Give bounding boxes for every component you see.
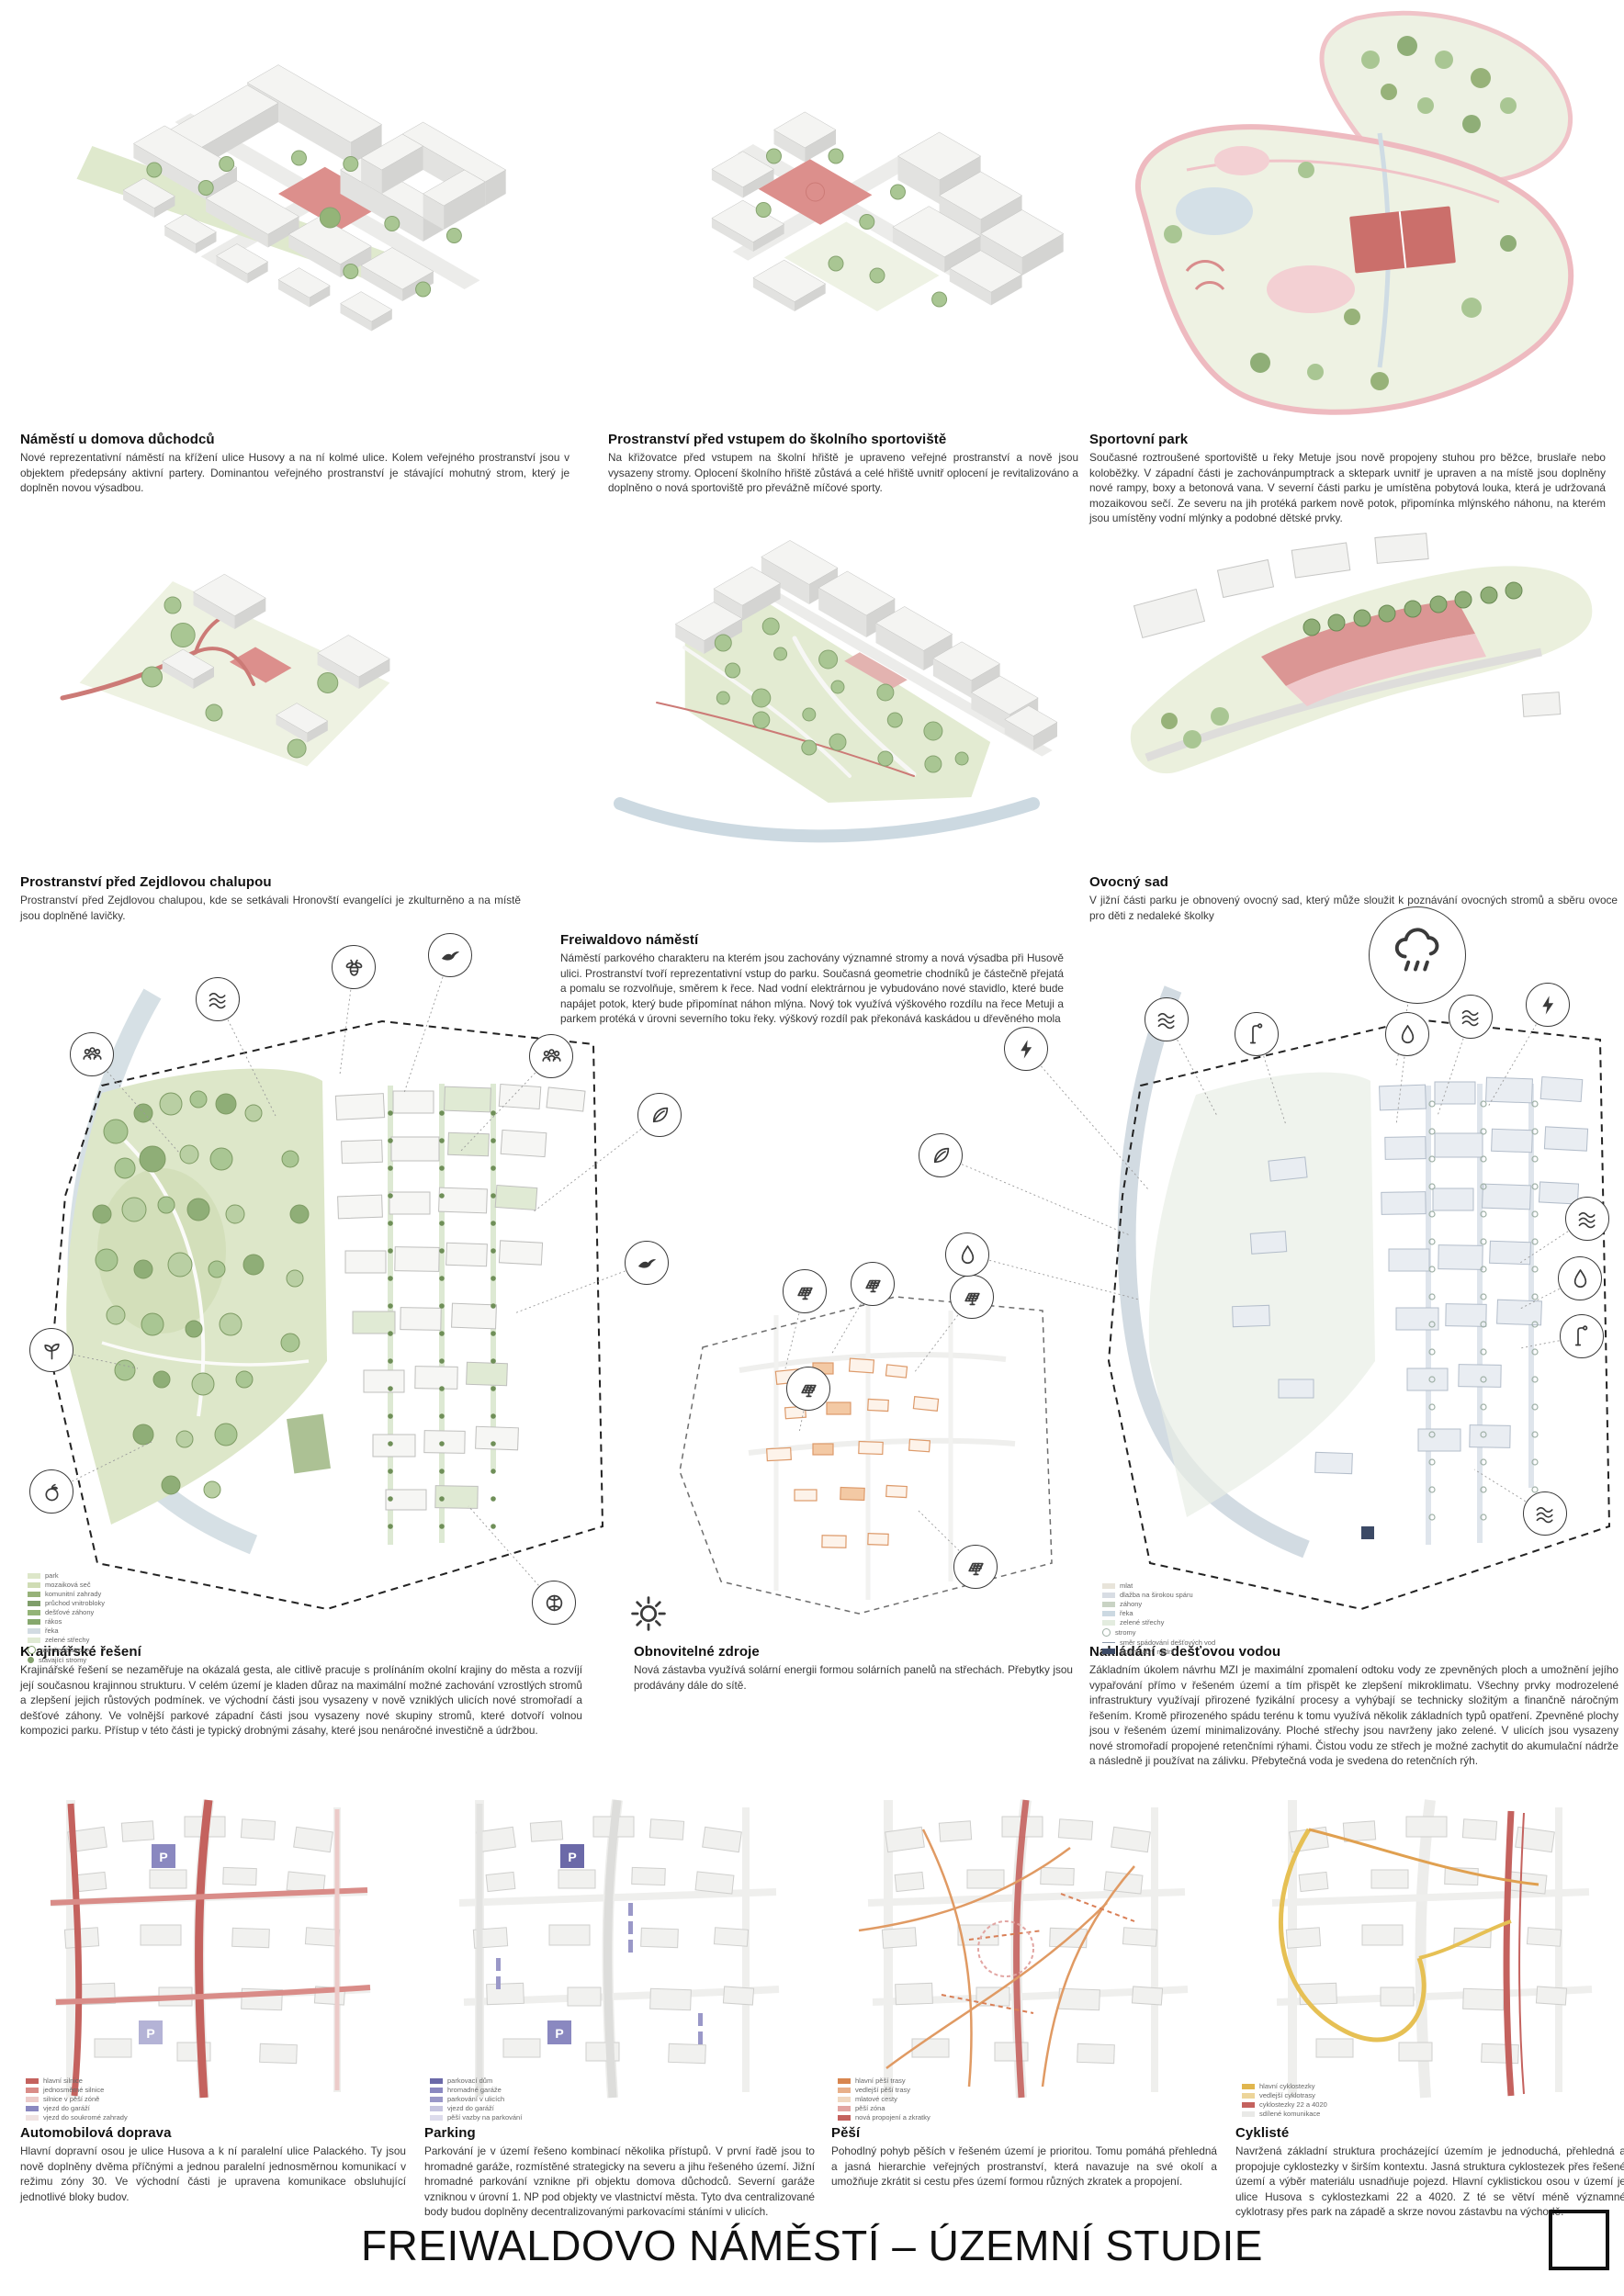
caption-automobilova-doprava: Automobilová doprava Hlavní dopravní oso… [20,2125,406,2204]
caption-body: Současné roztroušené sportoviště u řeky … [1089,450,1606,526]
legend-label: hlavní silnice [43,2077,83,2085]
bird-icon [428,933,472,977]
legend-item: nová propojení a zkratky [838,2114,930,2122]
sprout-icon [29,1328,73,1372]
legend-swatch [1242,2102,1255,2108]
legend-swatch [28,1610,40,1615]
caption-body: Na křižovatce před vstupem na školní hři… [608,450,1078,496]
legend-label: směr spádování dešťových vod [1120,1639,1215,1647]
solar-icon [950,1275,994,1319]
legend-swatch [1102,1628,1111,1637]
legend-item: hlavní cyklostezky [1242,2083,1327,2090]
legend-label: mozaiková seč [45,1581,91,1589]
caption-title: Cyklisté [1235,2125,1624,2141]
legend-swatch [430,2115,443,2121]
caption-pesi: Pěší Pohodlný pohyb pěších v řešeném úze… [831,2125,1217,2189]
legend-item: parkování v ulicích [430,2096,522,2103]
map-cykliste [1235,1793,1621,2105]
caption-title: Automobilová doprava [20,2125,406,2141]
caption-zejdlova-chalupa: Prostranství před Zejdlovou chalupou Pro… [20,874,521,923]
waves-icon [1523,1491,1567,1536]
legend-swatch [430,2078,443,2084]
legend-swatch [430,2106,443,2111]
legend-swatch [26,2115,39,2121]
legend-item: vjezd do soukromé zahrady [26,2114,128,2122]
legend-item: stromy [1102,1628,1215,1637]
legend-item: parkovací dům [430,2077,522,2085]
legend-label: pěší vazby na parkování [447,2114,522,2122]
caption-skolni-sportoviste: Prostranství před vstupem do školního sp… [608,432,1078,496]
legend-item: mlat [1102,1582,1215,1590]
caption-body: Parkování je v území řešeno kombinací ně… [424,2144,815,2220]
bird-icon [625,1241,669,1285]
bee-icon [332,945,376,989]
legend-item: mozaiková seč [28,1581,105,1589]
legend-label: pěší zóna [855,2105,885,2112]
caption-obnovitelne-zdroje: Obnovitelné zdroje Nová zástavba využívá… [634,1644,1073,1693]
axonometry-sportovni-park [1077,5,1618,436]
legend-swatch [1242,2111,1255,2117]
legend-swatch [26,2088,39,2093]
legend-krajinarske-reseni: parkmozaiková sečkomunitní zahradyprůcho… [28,1572,105,1666]
caption-title: Parking [424,2125,815,2141]
waves-icon [1145,997,1189,1041]
legend-item: silnice v pěší zóně [26,2096,128,2103]
legend-label: vjezd do soukromé zahrady [43,2114,128,2122]
drop-icon [1558,1256,1602,1300]
raincloud-icon [1369,906,1466,1004]
solar-icon [783,1269,827,1313]
legend-item: akumulační nádrž [1102,1649,1215,1656]
legend-label: hromadné garáže [447,2087,502,2094]
legend-swatch [838,2078,851,2084]
caption-body: Hlavní dopravní osou je ulice Husova a k… [20,2144,406,2204]
legend-item: hlavní silnice [26,2077,128,2085]
legend-item: navržené stromy [28,1646,105,1654]
poster-title: FREIWALDOVO NÁMĚSTÍ – ÚZEMNÍ STUDIE [0,2221,1624,2270]
caption-title: Obnovitelné zdroje [634,1644,1073,1660]
legend-item: vedlejší pěší trasy [838,2087,930,2094]
caption-title: Prostranství před Zejdlovou chalupou [20,874,521,890]
legend-label: sdílené komunikace [1259,2110,1320,2118]
legend-label: komunitní zahrady [45,1591,101,1598]
caption-body: Nové reprezentativní náměstí na křížení … [20,450,570,496]
legend-item: vedlejší cyklotrasy [1242,2092,1327,2099]
legend-swatch [28,1619,40,1625]
legend-label: jednosměrné silnice [43,2087,104,2094]
legend-swatch [1102,1593,1115,1598]
legend-swatch [430,2097,443,2102]
people-icon [529,1034,573,1078]
drop-icon [945,1232,989,1277]
waves-icon [1565,1197,1609,1241]
legend-item: vjezd do garáží [26,2105,128,2112]
legend-item: pěší vazby na parkování [430,2114,522,2122]
legend-label: mlat [1120,1582,1133,1590]
legend-label: vedlejší pěší trasy [855,2087,910,2094]
caption-nakladani-destova-voda: Nakládání s dešťovou vodou Základním úko… [1089,1644,1618,1769]
legend-item: stávající stromy [28,1657,105,1664]
legend-label: akumulační nádrž [1120,1649,1174,1656]
caption-title: Sportovní park [1089,432,1606,447]
legend-item: hlavní pěší trasy [838,2077,930,2085]
legend-item: vjezd do garáží [430,2105,522,2112]
legend-item: mlatové cesty [838,2096,930,2103]
legend-item: komunitní zahrady [28,1591,105,1598]
leaf-icon [637,1093,682,1137]
map-pesi [831,1793,1217,2105]
legend-label: vjezd do garáží [447,2105,494,2112]
presentation-board: PP PP Náměstí u domova důchodců Nové rep… [0,0,1624,2296]
caption-ovocny-sad: Ovocný sad V jižní části parku je obnove… [1089,874,1618,923]
legend-item: zelené střechy [1102,1619,1215,1626]
solar-icon [786,1367,830,1411]
svg-text:P: P [146,2026,154,2041]
caption-body: Pohodlný pohyb pěších v řešeném území je… [831,2144,1217,2189]
legend-parking: parkovací důmhromadné garážeparkování v … [430,2077,522,2123]
legend-cykliste: hlavní cyklostezkyvedlejší cyklotrasycyk… [1242,2083,1327,2120]
legend-label: hlavní cyklostezky [1259,2083,1314,2090]
plan-krajinarske-reseni [15,975,621,1618]
legend-label: zelené střechy [45,1637,89,1644]
apple-icon [29,1469,73,1514]
legend-swatch [28,1582,40,1588]
caption-body: Krajinářské řešení se nezaměřuje na okáz… [20,1662,582,1739]
drop-icon [1385,1012,1429,1056]
caption-body: Nová zástavba využívá solární energii fo… [634,1662,1073,1693]
caption-body: Základním úkolem návrhu MZI je maximální… [1089,1662,1618,1769]
legend-item: park [28,1572,105,1580]
axonometry-ovocny-sad [1082,510,1619,850]
legend-swatch [1242,2084,1255,2089]
legend-label: hlavní pěší trasy [855,2077,906,2085]
legend-swatch [28,1573,40,1579]
legend-swatch [28,1638,40,1643]
legend-label: mlatové cesty [855,2096,897,2103]
legend-swatch [838,2115,851,2121]
legend-item: cyklostezky 22 a 4020 [1242,2101,1327,2109]
plan-obnovitelne-zdroje [638,1260,1070,1627]
legend-swatch [28,1601,40,1606]
legend-item: hromadné garáže [430,2087,522,2094]
plug-icon [1526,983,1570,1027]
corner-square [1549,2210,1609,2270]
legend-label: vedlejší cyklotrasy [1259,2092,1315,2099]
caption-cykliste: Cyklisté Navržená základní struktura pro… [1235,2125,1624,2220]
legend-swatch [1242,2093,1255,2099]
legend-item: dešťové záhony [28,1609,105,1616]
legend-item: rákos [28,1618,105,1626]
svg-text:P: P [568,1850,576,1864]
waves-icon [196,977,240,1021]
legend-automobilova-doprava: hlavní silnicejednosměrné silnicesilnice… [26,2077,128,2123]
legend-label: park [45,1572,59,1580]
legend-swatch [26,2078,39,2084]
legend-label: dlažba na širokou spáru [1120,1592,1193,1599]
legend-swatch [1102,1583,1115,1589]
legend-label: cyklostezky 22 a 4020 [1259,2101,1327,2109]
legend-swatch [28,1592,40,1597]
axonometry-zejdlova-chalupa [7,514,485,863]
legend-label: navržené stromy [40,1647,91,1654]
legend-item: pěší zóna [838,2105,930,2112]
legend-label: rákos [45,1618,62,1626]
lamp-icon [1560,1314,1604,1358]
legend-label: parkování v ulicích [447,2096,504,2103]
caption-freiwaldovo-namesti: Freiwaldovo náměstí Náměstí parkového ch… [560,932,1064,1027]
solar-icon [953,1545,998,1589]
caption-body: Navržená základní struktura procházející… [1235,2144,1624,2220]
legend-swatch [26,2097,39,2102]
legend-swatch [28,1657,34,1663]
caption-body: Náměstí parkového charakteru na kterém j… [560,951,1064,1027]
legend-swatch [1102,1602,1115,1607]
legend-item: řeka [28,1627,105,1635]
legend-label: nová propojení a zkratky [855,2114,930,2122]
legend-item: jednosměrné silnice [26,2087,128,2094]
people-icon [70,1032,114,1076]
legend-swatch [28,1646,36,1654]
caption-body: V jižní části parku je obnovený ovocný s… [1089,893,1618,923]
caption-title: Pěší [831,2125,1217,2141]
legend-swatch [26,2106,39,2111]
solar-icon [851,1262,895,1306]
legend-label: řeka [1120,1610,1133,1617]
legend-swatch [1102,1642,1115,1644]
legend-label: vjezd do garáží [43,2105,90,2112]
legend-swatch [838,2106,851,2111]
legend-swatch [838,2097,851,2102]
caption-title: Prostranství před vstupem do školního sp… [608,432,1078,447]
caption-body: Prostranství před Zejdlovou chalupou, kd… [20,893,521,923]
legend-item: průchod vnitrobloky [28,1600,105,1607]
map-automobilova-doprava: PP [14,1793,400,2105]
legend-swatch [430,2088,443,2093]
legend-item: dlažba na širokou spáru [1102,1592,1215,1599]
caption-title: Náměstí u domova důchodců [20,432,570,447]
legend-label: dešťové záhony [45,1609,94,1616]
legend-label: stávající stromy [39,1657,86,1664]
legend-swatch [1102,1649,1115,1654]
legend-pesi: hlavní pěší trasyvedlejší pěší trasymlat… [838,2077,930,2123]
legend-swatch [1102,1620,1115,1626]
waves-icon [1449,995,1493,1039]
legend-label: zelené střechy [1120,1619,1164,1626]
caption-title: Freiwaldovo náměstí [560,932,1064,948]
caption-sportovni-park: Sportovní park Současné roztroušené spor… [1089,432,1606,526]
legend-item: sdílené komunikace [1242,2110,1327,2118]
legend-destova-voda: mlatdlažba na širokou spáruzáhonyřekazel… [1102,1582,1215,1658]
legend-label: parkovací dům [447,2077,492,2085]
legend-swatch [838,2088,851,2093]
legend-item: zelené střechy [28,1637,105,1644]
legend-swatch [1102,1611,1115,1616]
axonometry-freiwaldovo-namesti [519,501,1070,923]
map-parking: PP [423,1793,808,2105]
legend-item: řeka [1102,1610,1215,1617]
caption-parking: Parking Parkování je v území řešeno komb… [424,2125,815,2220]
svg-text:P: P [555,2026,563,2041]
sun-icon [628,1593,669,1634]
legend-label: silnice v pěší zóně [43,2096,99,2103]
svg-text:P: P [159,1850,167,1864]
lamp-icon [1235,1012,1279,1056]
plug-icon [1004,1027,1048,1071]
legend-label: záhony [1120,1601,1142,1608]
legend-item: záhony [1102,1601,1215,1608]
cabbage-icon [532,1581,576,1625]
caption-namesti-domov: Náměstí u domova důchodců Nové reprezent… [20,432,570,496]
legend-label: stromy [1115,1629,1136,1637]
legend-label: řeka [45,1627,59,1635]
caption-title: Ovocný sad [1089,874,1618,890]
leaf-icon [919,1133,963,1177]
legend-swatch [28,1628,40,1634]
axonometry-skolni-sportoviste [602,28,1079,422]
axonometry-namesti-domov [7,7,568,416]
legend-label: průchod vnitrobloky [45,1600,105,1607]
legend-item: směr spádování dešťových vod [1102,1639,1215,1647]
